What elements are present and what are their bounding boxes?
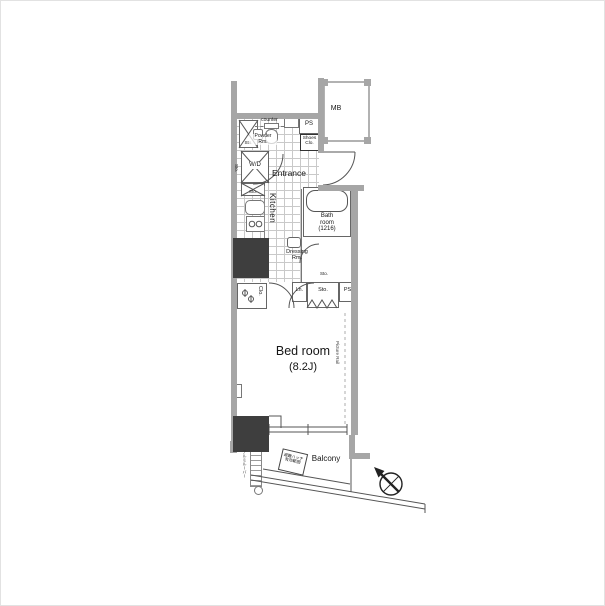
- kitchen-sink: [245, 200, 265, 215]
- meter-box-corner-tr: [364, 79, 371, 86]
- closet-label: Clo.: [257, 286, 263, 296]
- balcony-label: Balcony: [307, 455, 345, 464]
- floor-plan: MB PS counter ShoesClo. Sto. PowderRm. W…: [0, 0, 605, 606]
- bathtub: [306, 190, 348, 212]
- bathroom-label: Bathroom(1216): [305, 213, 349, 233]
- dressing-basin: [287, 237, 301, 248]
- aluminum-louver: [250, 450, 262, 487]
- drain-cap: [254, 486, 263, 495]
- dressing-storage-label: Sto.: [315, 271, 333, 276]
- powder-room-label: PowderRm.: [249, 134, 277, 145]
- pillar-upper: [233, 238, 269, 278]
- pipe-space-top-label: PS: [299, 121, 319, 128]
- wall-balcony-stub-h: [349, 453, 370, 459]
- counter-top: [284, 118, 299, 128]
- shoes-closet-label: ShoesClo.: [300, 136, 319, 147]
- balcony-railing: [251, 459, 425, 513]
- meter-box-label: MB: [325, 105, 347, 113]
- entrance-door: [323, 152, 355, 185]
- wall-right-main: [351, 189, 358, 435]
- compass-icon: [374, 467, 402, 495]
- counter-label: counter: [255, 118, 284, 124]
- kitchen-storage-label: Sto.: [241, 189, 265, 194]
- kitchen-label: Kitchen: [267, 193, 276, 223]
- picture-rail-label: Picture Rail: [335, 341, 340, 364]
- storage-label: Sto.: [309, 287, 337, 293]
- meter-box-corner-br: [364, 137, 371, 144]
- louver-label: アルミルーバー: [242, 450, 246, 478]
- pillar-lower: [233, 416, 269, 452]
- wall-balcony-stub-v: [349, 435, 355, 455]
- washer-storage-label: Sto.: [234, 164, 239, 172]
- linen-label: Ln.: [292, 288, 307, 294]
- washer-dryer-label: W/D: [245, 162, 265, 169]
- dressing-room-label: DressingRm.: [282, 249, 312, 261]
- meter-box-corner-tl: [321, 79, 328, 86]
- meter-box-corner-bl: [321, 137, 328, 144]
- pipe-space-bottom-label: PS: [339, 287, 356, 293]
- storage-closet: [307, 282, 339, 308]
- entrance-label: Entrance: [261, 169, 317, 179]
- kitchen-stove: [246, 216, 265, 232]
